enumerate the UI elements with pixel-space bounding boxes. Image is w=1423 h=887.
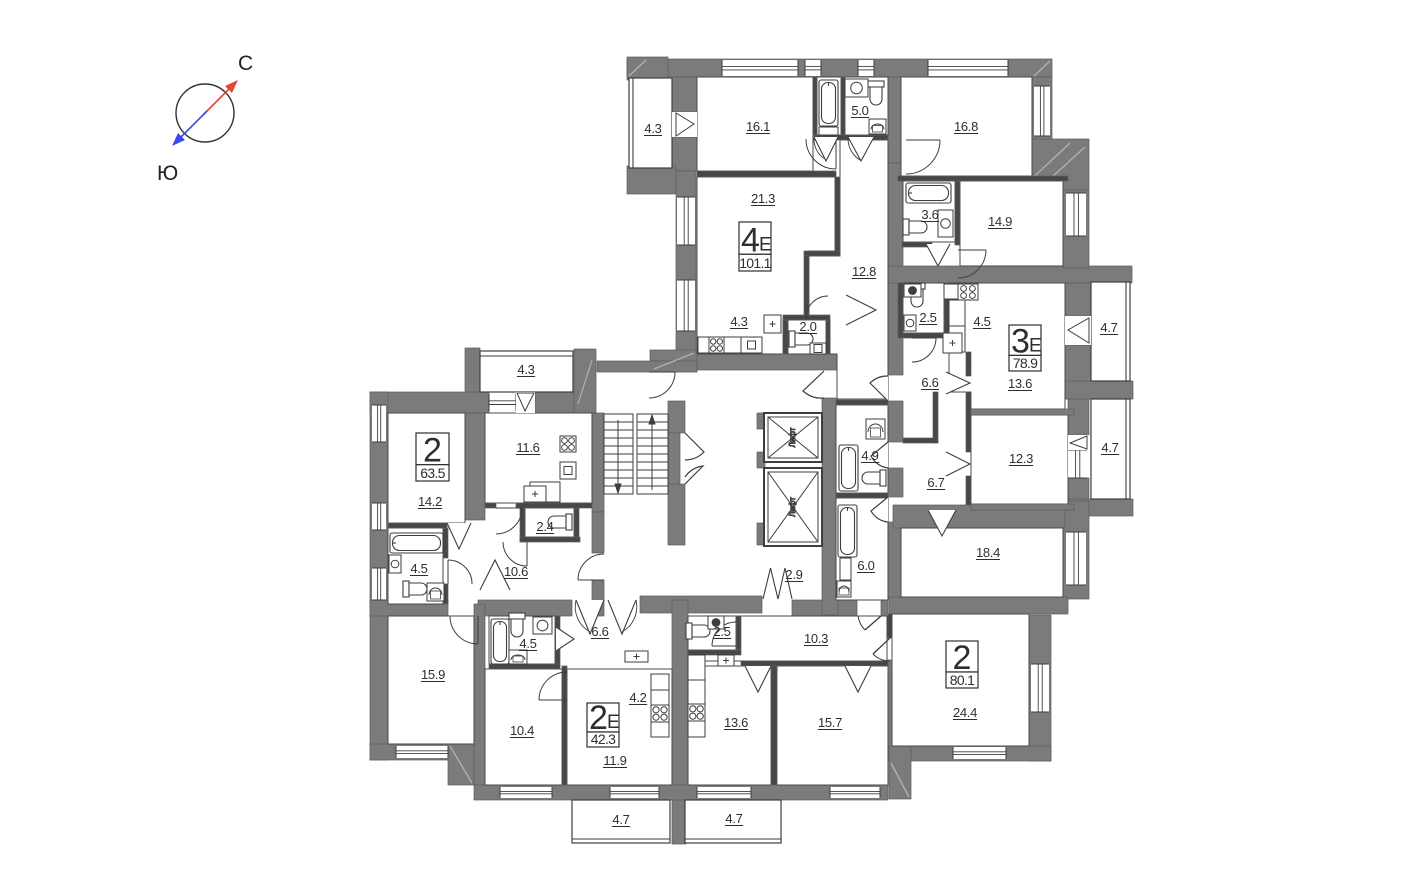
svg-text:11.6: 11.6: [516, 440, 539, 455]
svg-text:4.5: 4.5: [410, 561, 427, 576]
svg-text:4.2: 4.2: [629, 690, 646, 705]
svg-text:4.7: 4.7: [1101, 440, 1118, 455]
svg-text:С: С: [238, 52, 253, 75]
svg-text:13.6: 13.6: [724, 715, 748, 730]
svg-text:5.0: 5.0: [851, 103, 868, 118]
svg-text:10.4: 10.4: [510, 723, 534, 738]
svg-text:15.9: 15.9: [421, 667, 445, 682]
svg-text:Е: Е: [759, 234, 772, 255]
svg-text:Е: Е: [1029, 335, 1042, 356]
svg-text:21.3: 21.3: [751, 191, 775, 206]
svg-text:11.9: 11.9: [603, 753, 626, 768]
svg-text:4.3: 4.3: [517, 362, 534, 377]
svg-text:2.9: 2.9: [785, 567, 802, 582]
svg-text:13.6: 13.6: [1008, 376, 1032, 391]
svg-text:14.9: 14.9: [988, 214, 1012, 229]
svg-text:42.3: 42.3: [591, 731, 616, 747]
svg-text:6.7: 6.7: [927, 475, 944, 490]
svg-text:12.8: 12.8: [852, 264, 876, 279]
svg-text:101.1: 101.1: [739, 255, 771, 271]
svg-text:12.3: 12.3: [1009, 451, 1033, 466]
svg-text:63.5: 63.5: [420, 465, 445, 481]
svg-text:4: 4: [741, 221, 760, 259]
svg-text:2.5: 2.5: [919, 310, 936, 325]
svg-text:Лифт: Лифт: [788, 427, 797, 447]
svg-text:15.7: 15.7: [818, 715, 842, 730]
svg-text:4.5: 4.5: [973, 314, 990, 329]
svg-text:2: 2: [423, 432, 442, 470]
svg-text:14.2: 14.2: [418, 494, 442, 509]
svg-text:6.6: 6.6: [921, 375, 938, 390]
svg-text:10.3: 10.3: [804, 631, 828, 646]
svg-text:4.9: 4.9: [861, 448, 878, 463]
svg-text:16.1: 16.1: [746, 119, 770, 134]
svg-text:4.3: 4.3: [730, 314, 747, 329]
svg-text:Е: Е: [607, 712, 620, 733]
svg-text:2.5: 2.5: [713, 624, 730, 639]
svg-text:4.5: 4.5: [519, 636, 536, 651]
svg-text:80.1: 80.1: [950, 672, 975, 688]
svg-text:2.4: 2.4: [536, 519, 553, 534]
svg-text:4.3: 4.3: [644, 121, 661, 136]
svg-text:10.6: 10.6: [504, 564, 528, 579]
svg-text:2.0: 2.0: [799, 319, 816, 334]
svg-text:4.7: 4.7: [612, 812, 629, 827]
svg-text:6.0: 6.0: [857, 558, 874, 573]
svg-text:24.4: 24.4: [953, 705, 977, 720]
svg-text:4.7: 4.7: [725, 811, 742, 826]
svg-text:Ю: Ю: [157, 162, 178, 185]
svg-text:4.7: 4.7: [1100, 320, 1117, 335]
svg-text:18.4: 18.4: [976, 545, 1000, 560]
svg-text:16.8: 16.8: [954, 119, 978, 134]
svg-text:3.6: 3.6: [921, 207, 938, 222]
svg-text:78.9: 78.9: [1013, 355, 1038, 371]
svg-text:Лифт: Лифт: [788, 497, 797, 517]
svg-text:6.6: 6.6: [591, 624, 608, 639]
